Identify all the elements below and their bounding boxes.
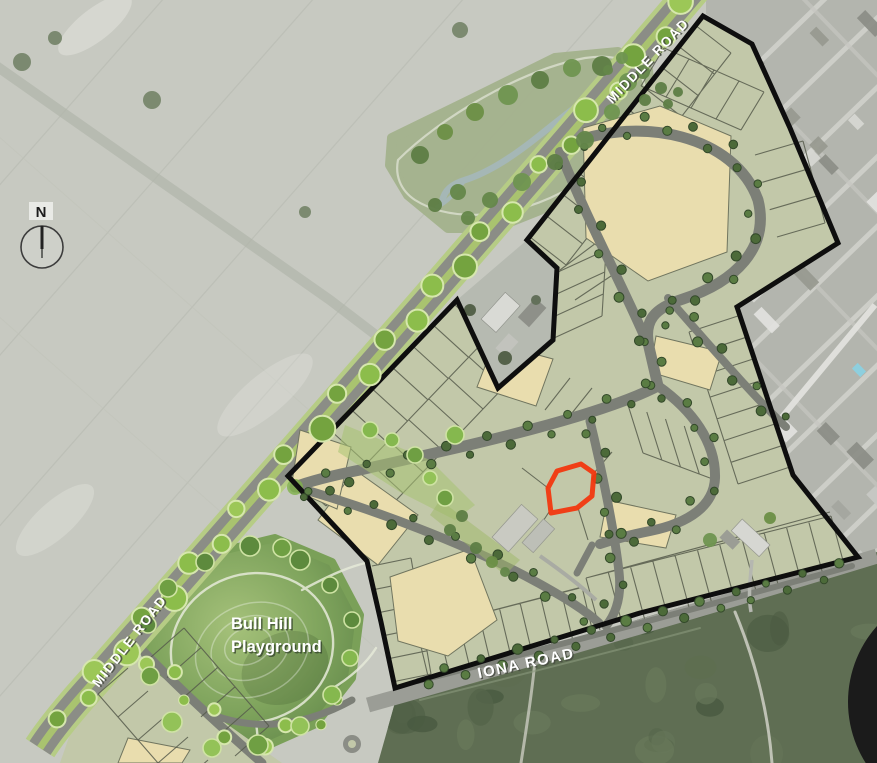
map-canvas: MIDDLE ROAD MIDDLE ROAD MIDDLE ROAD MIDD… [0,0,877,763]
compass-north-letter: N [36,204,47,221]
masterplan-map: MIDDLE ROAD MIDDLE ROAD MIDDLE ROAD MIDD… [0,0,877,763]
svg-text:Bull Hill: Bull Hill [231,615,292,633]
svg-text:Playground: Playground [231,638,322,656]
